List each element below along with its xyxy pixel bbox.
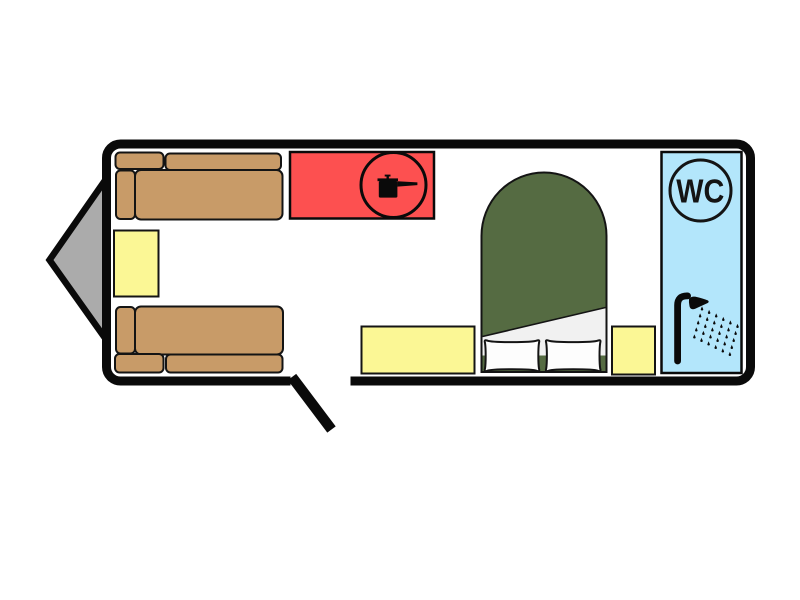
svg-text:WC: WC — [676, 173, 724, 210]
